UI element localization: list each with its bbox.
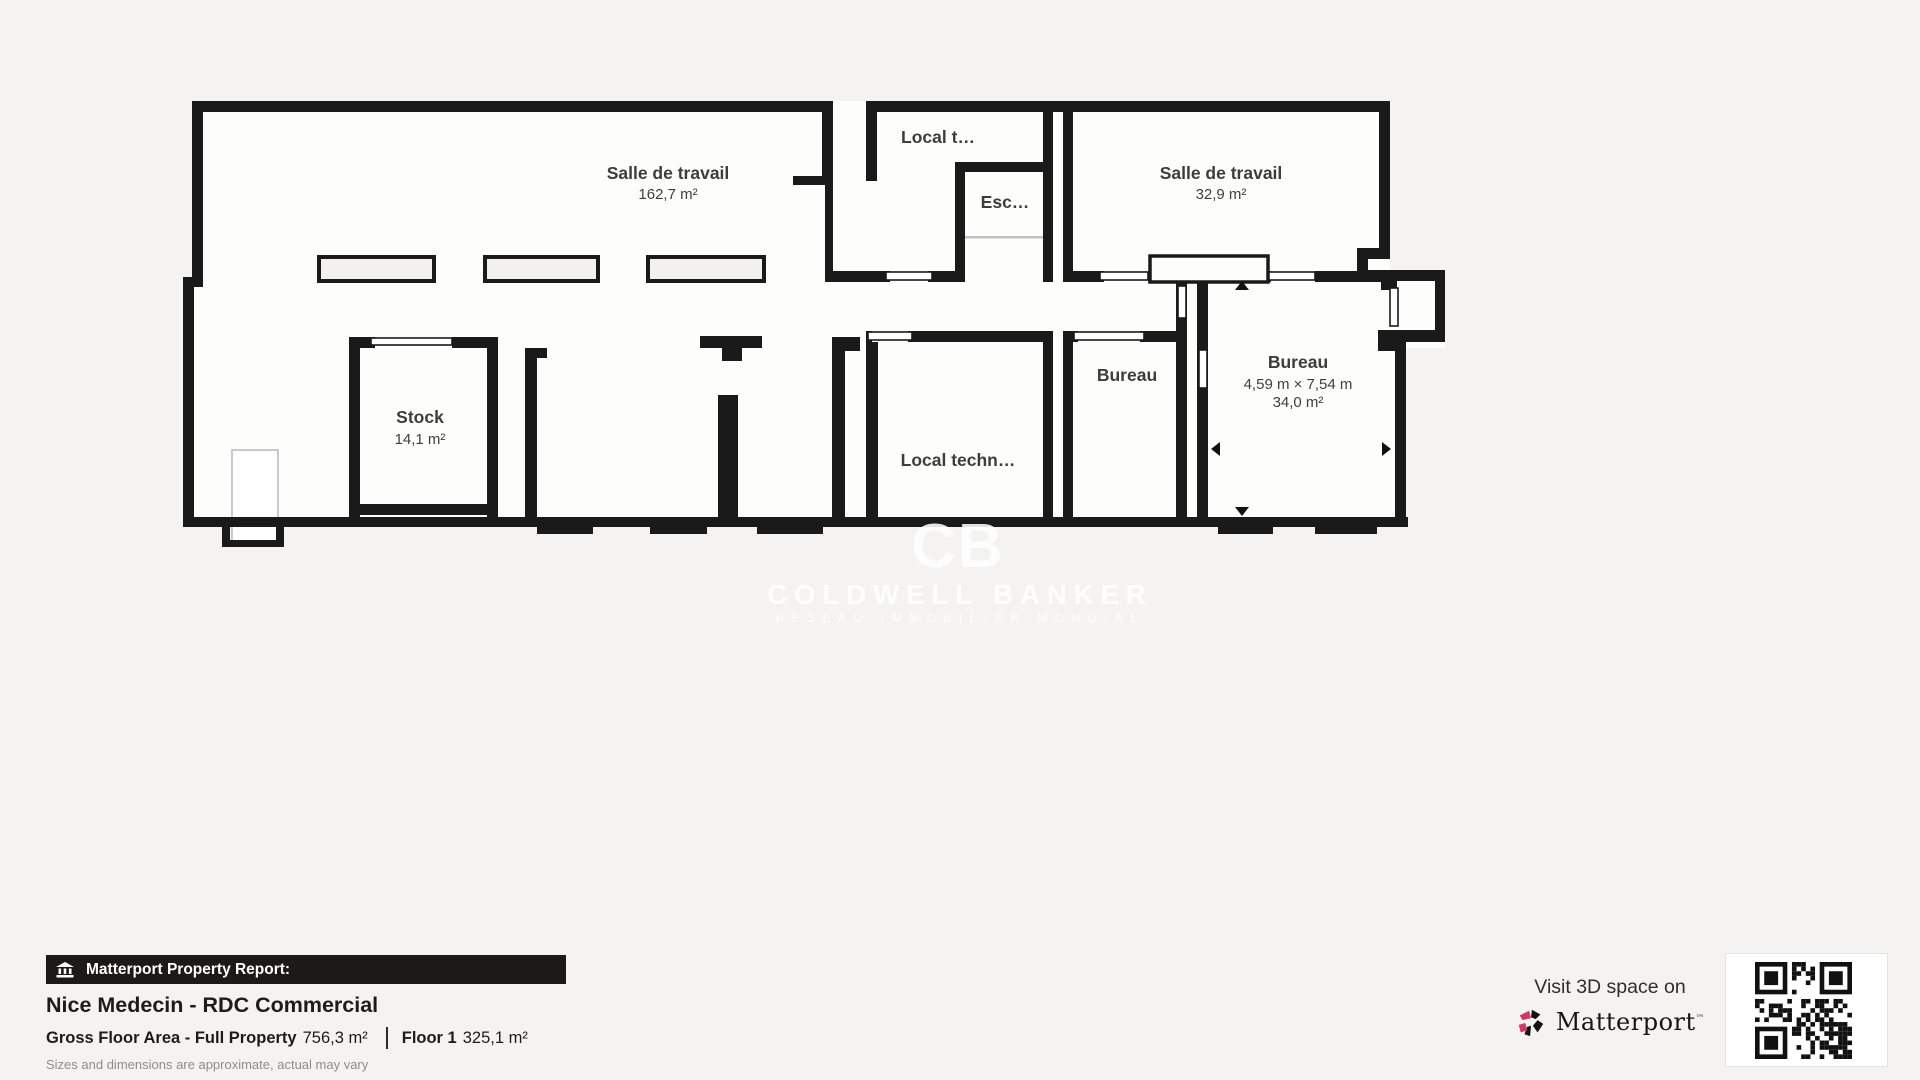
room-label-bureau-small: Bureau [1097,365,1157,385]
room-label-stock: Stock [396,407,444,427]
divider [386,1027,388,1049]
room-label-bureau-right: Bureau [1268,352,1328,372]
watermark-brand-line: COLDWELL BANKER [767,579,1153,610]
visit-3d-text: Visit 3D space on [1500,976,1720,999]
room-area-stock: 14,1 m² [395,431,446,448]
qr-card [1725,953,1888,1067]
watermark-tagline: RESEAU IMMOBILIER MONDIAL [776,611,1145,625]
window-bay [1150,256,1268,282]
floor-label: Floor 1 [402,1029,457,1048]
property-title: Nice Medecin - RDC Commercial [46,993,746,1018]
room-area-bureau-right: 34,0 m² [1273,394,1324,411]
exterior-stair-outline [232,450,278,542]
room-label-local-techn: Local techn… [901,450,1016,470]
floor-value: 325,1 m² [463,1029,528,1048]
room-label-salle2: Salle de travail [1160,163,1283,183]
trademark-symbol: ™ [1696,1014,1706,1024]
report-info: Matterport Property Report: Nice Medecin… [46,955,746,1072]
room-area-salle1: 162,7 m² [638,186,697,203]
room-label-local-t: Local t… [901,127,975,147]
report-banner: Matterport Property Report: [46,955,566,984]
building-icon [56,962,74,978]
area-summary: Gross Floor Area - Full Property 756,3 m… [46,1027,746,1049]
room-area-salle2: 32,9 m² [1196,186,1247,203]
matterport-promo: Visit 3D space on Matterport™ [1500,976,1720,1038]
matterport-wordmark: Matterport™ [1556,1008,1705,1036]
room-label-salle1: Salle de travail [607,163,730,183]
partition-blocks [319,257,764,281]
room-dims-bureau-right: 4,59 m × 7,54 m [1244,376,1353,393]
report-banner-label: Matterport Property Report: [86,961,290,979]
gfa-value: 756,3 m² [303,1029,368,1048]
floor-plan: Salle de travail 162,7 m² Local t… Esc… … [0,0,1920,1080]
room-label-esc: Esc… [981,192,1030,212]
matterport-pinwheel-icon [1515,1006,1547,1038]
disclaimer-text: Sizes and dimensions are approximate, ac… [46,1057,746,1072]
qr-code[interactable] [1755,962,1852,1059]
watermark-monogram: CB [911,512,1005,581]
coldwell-banker-watermark: CB COLDWELL BANKER RESEAU IMMOBILIER MON… [767,512,1153,625]
gfa-label: Gross Floor Area - Full Property [46,1029,297,1048]
stair-edge-line [965,236,1043,239]
floor-plan-report-page: Salle de travail 162,7 m² Local t… Esc… … [0,0,1920,1080]
matterport-link[interactable]: Matterport™ [1500,1006,1720,1038]
